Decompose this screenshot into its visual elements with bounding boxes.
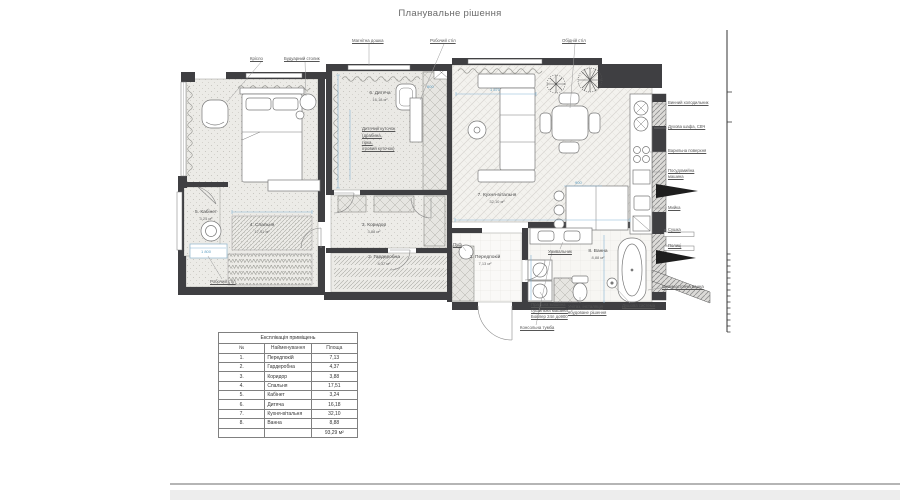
row-num: 8. — [219, 419, 265, 428]
header-name: Найменування — [265, 344, 311, 353]
callout-armchair: Крісло — [250, 56, 263, 62]
room-area: 7,13 м² — [455, 261, 515, 266]
room-label-korydor: 3. Коридор 3,88 м² — [346, 223, 402, 234]
table-title: Експлікація приміщень — [219, 333, 358, 344]
callout-washer: Пральна машина сушильна машина Бойлер 24… — [531, 302, 568, 321]
room-area: 16,18 м² — [352, 97, 408, 102]
table-row: 5.Кабінет3,24 — [219, 391, 358, 400]
callout-shower: Душова система — [622, 303, 655, 309]
row-name: Дитяча — [265, 400, 311, 409]
kids-corner-line1: Дитячий куточок — [362, 126, 395, 133]
row-area: 7,13 — [311, 353, 357, 362]
room-label-peredpokii: 1. Передпокій 7,13 м² — [455, 255, 515, 266]
row-area: 3,88 — [311, 372, 357, 381]
room-explication-table: Експлікація приміщень № Найменування Пло… — [218, 332, 358, 438]
row-name: Коридор — [265, 372, 311, 381]
room-area: 17,51 м² — [232, 229, 292, 234]
row-area: 16,18 — [311, 400, 357, 409]
label-cooktop: Варильна поверхня — [668, 148, 710, 154]
row-name: Кухня-вітальня — [265, 409, 311, 418]
armchair — [202, 100, 228, 128]
callout-dining-table: Обідній стіл — [562, 38, 586, 44]
vanity-sinks — [530, 228, 592, 244]
room-area: 4,37 м² — [352, 261, 416, 266]
row-area: 32,10 — [311, 409, 357, 418]
dimension-sofa: 1 570 — [490, 87, 500, 92]
table-row: 7.Кухня-вітальня32,10 — [219, 409, 358, 418]
dimension-island: 900 — [575, 180, 582, 185]
room-area: 8,88 м² — [578, 255, 618, 260]
kitchen-appliances — [630, 94, 652, 234]
callout-freestanding-bath: Окремостояча ванна — [662, 284, 704, 290]
row-area: 4,37 — [311, 362, 357, 371]
row-num: 2. — [219, 362, 265, 371]
row-area: 8,88 — [311, 419, 357, 428]
callout-pouf: Пуф — [453, 242, 462, 248]
table-total: 93,29 м² — [311, 428, 357, 437]
table-row: 3.Коридор3,88 — [219, 372, 358, 381]
room-label-kukhnia: 7. Кухня-вітальня 32,10 м² — [462, 193, 532, 204]
footer-divider-line — [170, 483, 900, 485]
label-dishwasher: Посудомийна машина — [668, 168, 710, 180]
row-name: Кабінет — [265, 391, 311, 400]
table-row: 1.Передпокій7,13 — [219, 353, 358, 362]
room-label-dytiacha: 6. Дитяча 16,18 м² — [352, 91, 408, 102]
callout-toilet: Унітаз, інсталяція вбудоване рішення — [568, 304, 606, 316]
table-row: 2.Гардеробна4,37 — [219, 362, 358, 371]
room-label-vanna: 8. Ванна 8,88 м² — [578, 249, 618, 260]
horizontal-scrollbar[interactable] — [170, 490, 900, 500]
room-label-harderobna: 2. Гардеробна 4,37 м² — [352, 255, 416, 266]
dresser — [268, 180, 320, 191]
kids-corner-line4: ігровий куточок) — [362, 146, 395, 153]
label-shelves: Полиці — [668, 243, 710, 249]
dimension-desk: 1 800 — [201, 249, 211, 254]
kids-corner-note: Дитячий куточок (драбина, гірка, ігровий… — [362, 126, 395, 153]
callout-magnetic-board: Магнітна дошка — [352, 38, 384, 44]
kids-corner-line2: (драбина, — [362, 133, 395, 140]
label-wine-fridge: Винний холодильник — [668, 100, 710, 106]
row-name: Спальня — [265, 381, 311, 390]
dimension-closet: 600 — [427, 84, 434, 89]
row-num: 5. — [219, 391, 265, 400]
table-row: 4.Спальня17,51 — [219, 381, 358, 390]
header-area: Площа — [311, 344, 357, 353]
row-num: 6. — [219, 400, 265, 409]
table-header-row: № Найменування Площа — [219, 344, 358, 353]
coffee-table — [468, 121, 486, 139]
row-num: 7. — [219, 409, 265, 418]
table-row: 6.Дитяча16,18 — [219, 400, 358, 409]
row-name: Ванна — [265, 419, 311, 428]
floor-plan-drawing — [0, 0, 900, 500]
room-area: 32,10 м² — [462, 199, 532, 204]
label-sink: Мийка — [668, 205, 710, 211]
header-num: № — [219, 344, 265, 353]
row-area: 3,24 — [311, 391, 357, 400]
label-dryer: Сушка — [668, 227, 710, 233]
kids-corner-line3: гірка, — [362, 140, 395, 147]
bed — [240, 88, 304, 182]
callout-work-desk-left: Робочий стіл — [210, 279, 236, 285]
row-name: Передпокій — [265, 353, 311, 362]
row-num: 3. — [219, 372, 265, 381]
table-row: 8.Ванна8,88 — [219, 419, 358, 428]
callout-console: Консольна тумба — [520, 325, 554, 331]
label-oven-microwave: Духова шафа, СВЧ — [668, 124, 710, 130]
row-area: 17,51 — [311, 381, 357, 390]
row-num: 4. — [219, 381, 265, 390]
bathtub — [618, 238, 646, 302]
room-area: 3,24 м² — [186, 216, 226, 221]
row-num: 1. — [219, 353, 265, 362]
room-label-kabinet: 5. Кабінет 3,24 м² — [186, 210, 226, 221]
kids-desk — [410, 98, 422, 142]
room-label-spalnia: 4. Спальня 17,51 м² — [232, 223, 292, 234]
ruler — [727, 30, 732, 332]
callout-washer-line3: Бойлер 24л до900 — [531, 314, 568, 320]
callout-work-desk-top: Робочий стіл — [430, 38, 456, 44]
row-name: Гардеробна — [265, 362, 311, 371]
room-area: 3,88 м² — [346, 229, 402, 234]
table-total-row: 93,29 м² — [219, 428, 358, 437]
callout-sink-vanity: Умивальник — [548, 249, 572, 255]
callout-boudoir-table: Будуарний столик — [284, 56, 320, 62]
page: Планувальне рішення — [0, 0, 900, 500]
callout-toilet-line2: вбудоване рішення — [568, 310, 606, 316]
